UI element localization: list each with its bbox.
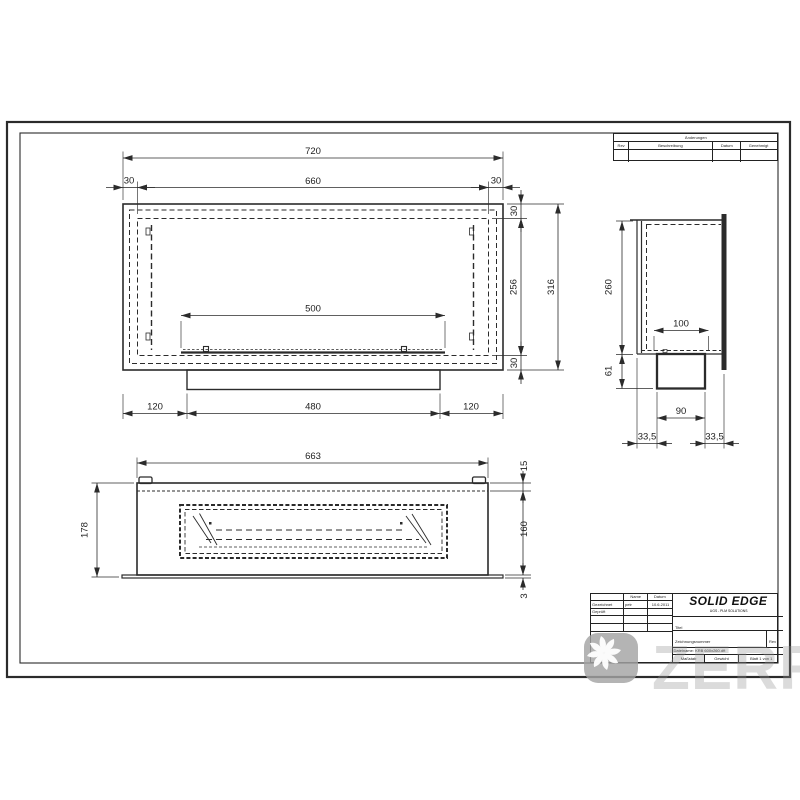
drawing-number-label: Zeichnungsnummer xyxy=(675,640,710,644)
drawn-by-cell: Gezeichnet xyxy=(591,601,624,608)
slot-tab-left xyxy=(204,347,209,352)
weight-label: Gewicht xyxy=(714,657,728,661)
signature-corner-cell xyxy=(591,594,624,600)
scale-cell: Maßstab xyxy=(673,655,705,662)
dim-335-left-label: 33,5 xyxy=(638,432,657,443)
front-view-dimensions xyxy=(106,152,564,420)
front-view xyxy=(123,204,503,390)
revision-col-description-label: Beschreibung xyxy=(658,144,682,148)
slot-tab-right xyxy=(402,347,407,352)
base-plate xyxy=(122,575,503,578)
cad-drawing: 720 660 30 30 500 30 256 30 316 120 480 … xyxy=(0,0,800,800)
solid-edge-logo: SOLID EDGE UGS - PLM SOLUTIONS xyxy=(673,594,783,617)
sheet-label: Blatt 1 von 1 xyxy=(750,657,772,661)
dim-160-label: 160 xyxy=(519,521,530,537)
dim-61-label: 61 xyxy=(604,366,615,377)
dim-30-top-label: 30 xyxy=(509,206,520,217)
signature-empty-cell xyxy=(591,624,624,631)
title-cell: Titel xyxy=(673,617,783,631)
revision-table-title-text: Änderungen xyxy=(685,136,707,140)
checked-by-date xyxy=(648,609,672,615)
side-view xyxy=(630,214,727,389)
name-col-label: Name xyxy=(630,595,641,599)
dim-500-label: 500 xyxy=(305,304,321,315)
drawn-by-date: 10.6.2011 xyxy=(648,601,672,608)
checked-by-label: Geprüft xyxy=(592,610,605,614)
bottom-view-dimensions xyxy=(92,458,532,591)
revision-col-date-label: Datum xyxy=(721,144,733,148)
signature-empty-cell xyxy=(648,624,672,631)
checked-by-name xyxy=(624,609,648,615)
dim-100-label: 100 xyxy=(673,319,689,330)
date-col-label: Datum xyxy=(654,595,666,599)
filename-row: Dateiname: KRB 600x260.dft xyxy=(673,648,783,655)
revision-empty-cell xyxy=(713,150,741,162)
dim-660-label: 660 xyxy=(305,176,321,187)
revision-table-empty-row xyxy=(614,150,777,162)
drawing-canvas: 720 660 30 30 500 30 256 30 316 120 480 … xyxy=(0,0,800,800)
burner-box xyxy=(657,354,705,389)
revision-table-header-row: Rev Beschreibung Datum Genehmigt xyxy=(614,142,777,150)
drawn-by-name: petr xyxy=(624,601,648,608)
dim-30-bottom-label: 30 xyxy=(509,358,520,369)
bottom-view xyxy=(122,477,503,578)
title-block-main: SOLID EDGE UGS - PLM SOLUTIONS Titel Zei… xyxy=(673,594,783,662)
revision-table: Änderungen Rev Beschreibung Datum Genehm… xyxy=(613,133,778,161)
dim-178-label: 178 xyxy=(80,522,91,538)
revision-empty-cell xyxy=(614,150,629,162)
dim-316-label: 316 xyxy=(546,279,557,295)
dim-480-label: 480 xyxy=(305,402,321,413)
revision-table-title: Änderungen xyxy=(614,134,777,142)
dim-3-label: 3 xyxy=(519,593,530,598)
revision-empty-cell xyxy=(629,150,713,162)
revision-empty-cell xyxy=(741,150,777,162)
dim-90-label: 90 xyxy=(676,406,687,417)
dim-663-label: 663 xyxy=(305,451,321,462)
title-block-bottom-row: Maßstab Gewicht Blatt 1 von 1 xyxy=(673,655,783,662)
signature-date-col: Datum xyxy=(648,594,672,600)
checked-by-cell: Geprüft xyxy=(591,609,624,615)
rev-cell: Rev xyxy=(767,631,783,647)
sheet-cell: Blatt 1 von 1 xyxy=(739,655,783,662)
signature-empty-cell xyxy=(591,616,624,623)
drawing-number-row: Zeichnungsnummer A2 Rev xyxy=(673,631,783,648)
dimension-labels: 720 660 30 30 500 30 256 30 316 120 480 … xyxy=(80,146,724,599)
bottom-protrusion xyxy=(187,370,440,390)
dim-15-label: 15 xyxy=(519,461,530,472)
glass-opening xyxy=(180,505,447,558)
drawn-by-label: Gezeichnet xyxy=(592,603,612,607)
signature-empty-cell xyxy=(624,616,648,623)
signature-name-col: Name xyxy=(624,594,648,600)
revision-col-description: Beschreibung xyxy=(629,142,713,149)
rev-cell-label: Rev xyxy=(769,640,776,644)
dim-260-label: 260 xyxy=(604,279,615,295)
revision-col-date: Datum xyxy=(713,142,741,149)
revision-col-approved-label: Genehmigt xyxy=(749,144,769,148)
dim-120-left-label: 120 xyxy=(147,402,163,413)
title-cell-label: Titel xyxy=(675,626,682,630)
dim-256-label: 256 xyxy=(509,279,520,295)
solid-edge-logo-text: SOLID EDGE xyxy=(689,595,767,607)
filename-text: Dateiname: KRB 600x260.dft xyxy=(673,649,725,653)
revision-col-rev: Rev xyxy=(614,142,629,149)
dim-30-left-label: 30 xyxy=(124,176,135,187)
dim-120-right-label: 120 xyxy=(463,402,479,413)
weight-cell: Gewicht xyxy=(705,655,739,662)
drawing-number-cell: Zeichnungsnummer A2 xyxy=(673,631,767,647)
signature-empty-cell xyxy=(648,616,672,623)
scale-label: Maßstab xyxy=(681,657,697,661)
revision-col-rev-label: Rev xyxy=(617,144,624,148)
title-block: Name Datum Gezeichnet petr 10.6.2011 Gep… xyxy=(590,593,778,663)
dim-335-right-label: 33,5 xyxy=(705,432,724,443)
dim-720-label: 720 xyxy=(305,146,321,157)
signature-empty-cell xyxy=(624,624,648,631)
drawn-by-date-value: 10.6.2011 xyxy=(651,603,669,607)
mounting-flange xyxy=(722,214,727,370)
dim-30-right-label: 30 xyxy=(491,176,502,187)
drawn-by-name-value: petr xyxy=(625,603,632,607)
solid-edge-logo-subtitle: UGS - PLM SOLUTIONS xyxy=(709,609,747,612)
revision-col-approved: Genehmigt xyxy=(741,142,777,149)
title-block-signatures: Name Datum Gezeichnet petr 10.6.2011 Gep… xyxy=(591,594,673,662)
